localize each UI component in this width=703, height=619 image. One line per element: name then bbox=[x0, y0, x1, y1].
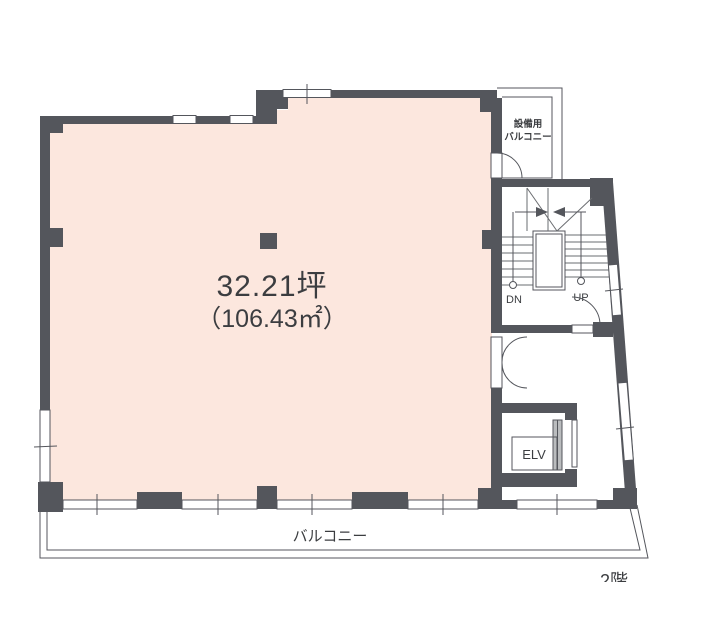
hall-bottom-wall bbox=[498, 494, 615, 515]
hall-double-door-arc-top bbox=[502, 337, 527, 362]
walls-slanted-right bbox=[602, 182, 637, 509]
stairwell-walls bbox=[491, 178, 613, 337]
balcony-label: バルコニー bbox=[293, 528, 368, 545]
equipment-balcony-label-line2: バルコニー bbox=[504, 131, 551, 143]
equipment-balcony-label-line1: 設備用 bbox=[514, 118, 543, 130]
interior-column bbox=[260, 233, 277, 249]
floor-plan: DN UP ELV 32.21坪 （106.43㎡） 設備用 バルコニー バルコ… bbox=[0, 0, 703, 619]
floor-plan-drawing: DN UP ELV 32.21坪 （106.43㎡） 設備用 バルコニー バルコ… bbox=[0, 0, 703, 619]
area-sqm-label: （106.43㎡） bbox=[196, 305, 347, 333]
stairs-down-label: DN bbox=[506, 294, 522, 306]
elevator: ELV bbox=[500, 403, 577, 487]
floor-label: 2階 bbox=[600, 571, 628, 591]
hall-double-door-arc-bottom bbox=[502, 363, 527, 388]
area-tsubo-label: 32.21坪 bbox=[216, 270, 327, 303]
stair-arrows bbox=[515, 207, 586, 217]
elevator-label: ELV bbox=[522, 447, 546, 462]
